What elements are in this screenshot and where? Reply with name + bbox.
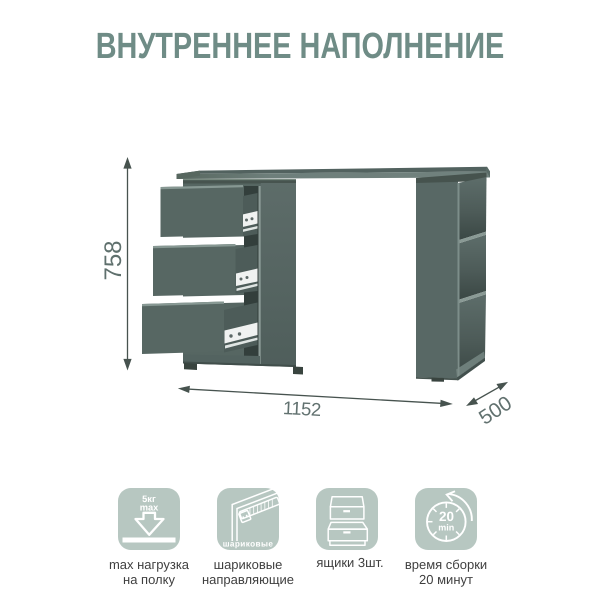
- svg-text:min: min: [438, 522, 454, 532]
- svg-text:max: max: [140, 503, 159, 513]
- svg-text:758: 758: [100, 240, 127, 280]
- svg-text:1152: 1152: [282, 397, 321, 420]
- svg-text:шариковые: шариковые: [223, 540, 274, 549]
